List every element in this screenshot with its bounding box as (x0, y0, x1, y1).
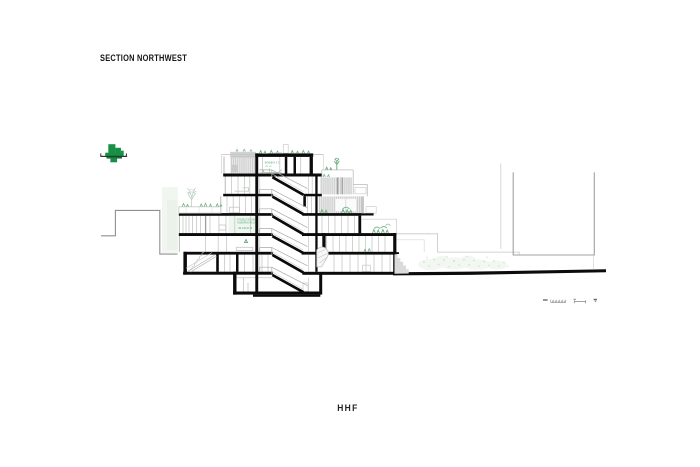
svg-text:KITA ZELLE 702-5.0M: KITA ZELLE 702-5.0M (237, 217, 255, 221)
svg-text:SECTION NORTHWEST: SECTION NORTHWEST (100, 53, 187, 63)
svg-text:WOHNEN 4.5 Z: WOHNEN 4.5 Z (265, 161, 280, 165)
svg-text:AUSSENRAUM 148 m2: AUSSENRAUM 148 m2 (237, 221, 255, 225)
svg-text:HHF: HHF (337, 403, 358, 413)
svg-text:134 m2: 134 m2 (265, 166, 273, 168)
svg-text:BK 448.20 55: BK 448.20 55 (239, 226, 253, 230)
